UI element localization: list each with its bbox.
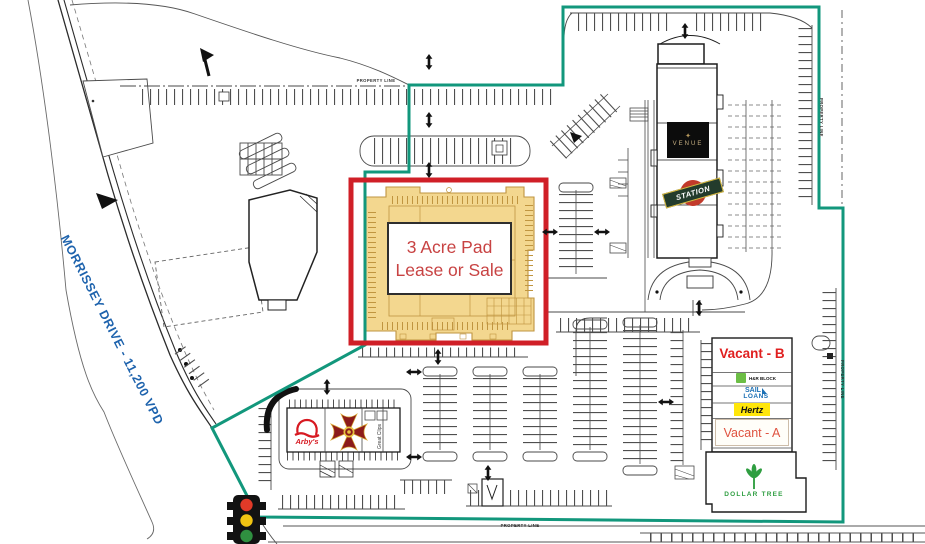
dollar-tree-icon xyxy=(742,464,766,490)
loans-label: LOANS xyxy=(743,394,768,400)
dashed-stalls-east-of-anchor xyxy=(728,100,783,252)
anchor-west-walk xyxy=(610,100,654,312)
venue-logo: ✦ VENUE xyxy=(667,122,709,158)
small-building-west xyxy=(249,190,317,310)
hr-block-label: H&R BLOCK xyxy=(749,376,776,381)
south-road xyxy=(268,526,925,542)
pad-callout: 3 Acre Pad Lease or Sale xyxy=(387,222,512,295)
arbys-hat-icon xyxy=(293,418,321,438)
traffic-light-icon xyxy=(227,495,266,544)
venue-label: VENUE xyxy=(673,141,704,147)
angled-stalls-northwest xyxy=(552,94,620,158)
fire-maltese-cross-icon xyxy=(329,411,369,453)
parking-top xyxy=(120,86,560,166)
vacant-a-label: Vacant - A xyxy=(724,426,781,440)
morrissey-drive-road xyxy=(28,0,277,544)
pad-callout-line2: Lease or Sale xyxy=(396,259,504,282)
pad-callout-line1: 3 Acre Pad xyxy=(407,236,493,259)
vacant-b-label: Vacant - B xyxy=(719,346,784,361)
arbys-label: Arby's xyxy=(295,438,318,446)
drive-thru-loop xyxy=(548,250,772,316)
venue-emblem-icon: ✦ xyxy=(685,133,691,140)
parking-south xyxy=(358,352,694,506)
hr-block-logo: H&R BLOCK xyxy=(722,371,790,385)
property-line-label-bottom: PROPERTY LINE xyxy=(501,523,540,528)
property-line-label-top: PROPERTY LINE xyxy=(357,78,396,83)
suite-vacant-b: Vacant - B xyxy=(713,341,791,365)
property-line-label-east-upper: PROPERTY LINE xyxy=(819,98,824,137)
north-boundary xyxy=(70,3,409,85)
arbys-logo: Arby's xyxy=(290,412,324,452)
fire-badge-logo xyxy=(329,411,369,453)
property-line-label-east-lower: PROPERTY LINE xyxy=(840,360,845,399)
dollar-tree-logo: DOLLAR TREE xyxy=(710,454,798,508)
site-plan: MORRISSEY DRIVE - 11,200 VPD PROPERTY LI… xyxy=(0,0,925,544)
hertz-label: Hertz xyxy=(741,405,764,415)
great-clips-label: Great Clips xyxy=(377,413,383,449)
hertz-logo: Hertz xyxy=(734,403,770,416)
hr-block-square-icon xyxy=(736,373,746,383)
dollar-tree-label: DOLLAR TREE xyxy=(724,491,783,498)
parking-east-column xyxy=(812,288,836,470)
suite-vacant-a: Vacant - A xyxy=(715,419,789,446)
sail-loans-logo: SAIL LOANS xyxy=(726,386,786,402)
